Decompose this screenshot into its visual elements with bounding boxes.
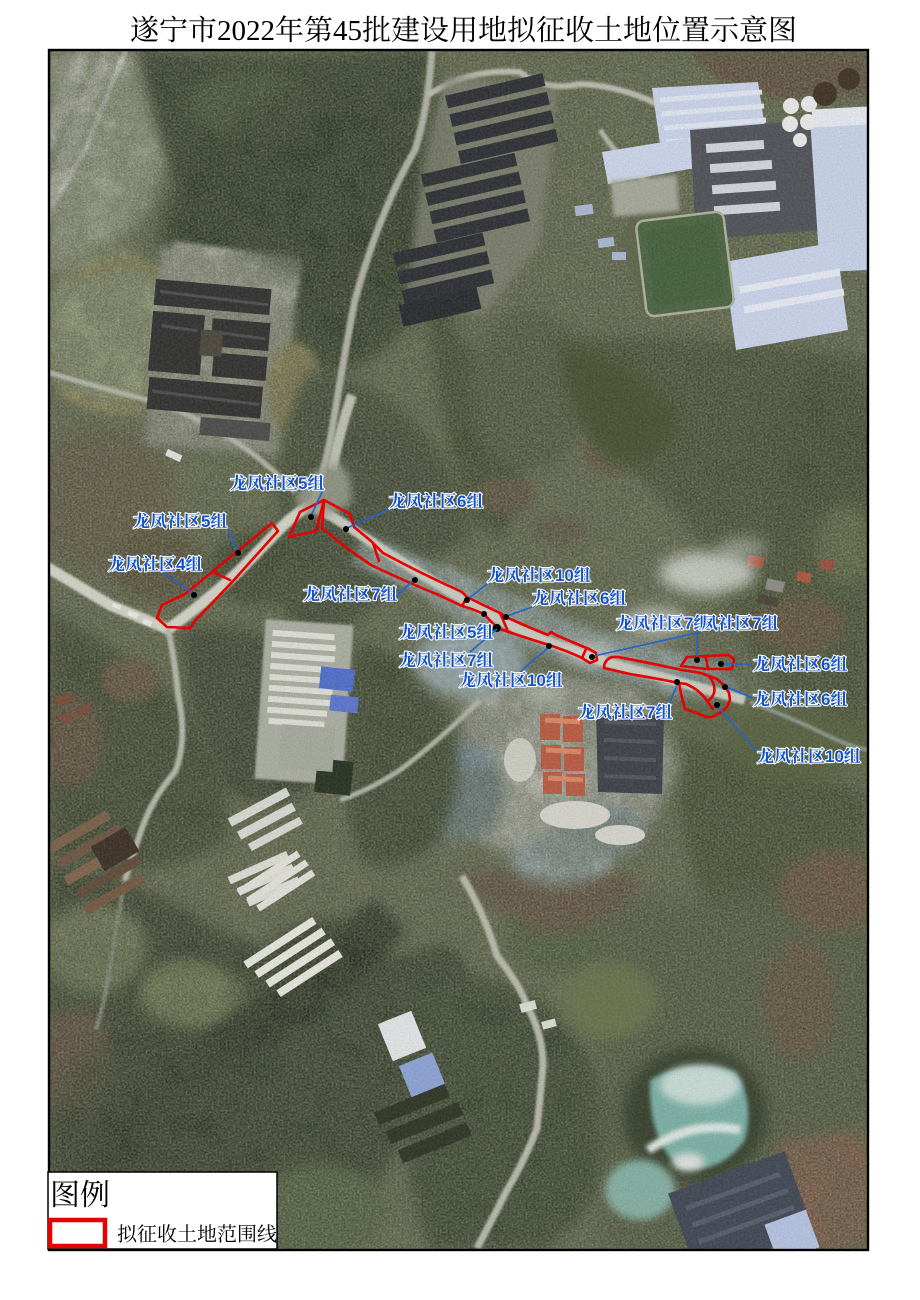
svg-text:1: 1	[527, 671, 536, 690]
svg-text:0: 0	[536, 671, 545, 690]
svg-text:6: 6	[821, 690, 830, 709]
svg-text:7: 7	[467, 651, 476, 670]
svg-text:2: 2	[261, 15, 276, 47]
svg-text:1: 1	[555, 566, 564, 585]
svg-text:2: 2	[246, 15, 261, 47]
svg-text:5: 5	[348, 15, 363, 47]
svg-text:6: 6	[457, 492, 466, 511]
svg-text:4: 4	[176, 555, 186, 574]
svg-text:5: 5	[298, 474, 307, 493]
svg-text:6: 6	[600, 589, 609, 608]
svg-text:5: 5	[467, 623, 476, 642]
svg-text:4: 4	[333, 15, 348, 47]
svg-text:6: 6	[821, 655, 830, 674]
svg-text:1: 1	[825, 747, 834, 766]
svg-text:7: 7	[646, 703, 655, 722]
svg-text:5: 5	[201, 512, 210, 531]
svg-text:0: 0	[232, 15, 247, 47]
svg-text:7: 7	[752, 614, 761, 633]
svg-text:2: 2	[217, 15, 232, 47]
svg-text:0: 0	[564, 566, 573, 585]
svg-text:7: 7	[371, 585, 380, 604]
svg-text:0: 0	[834, 747, 843, 766]
svg-text:7: 7	[684, 614, 693, 633]
